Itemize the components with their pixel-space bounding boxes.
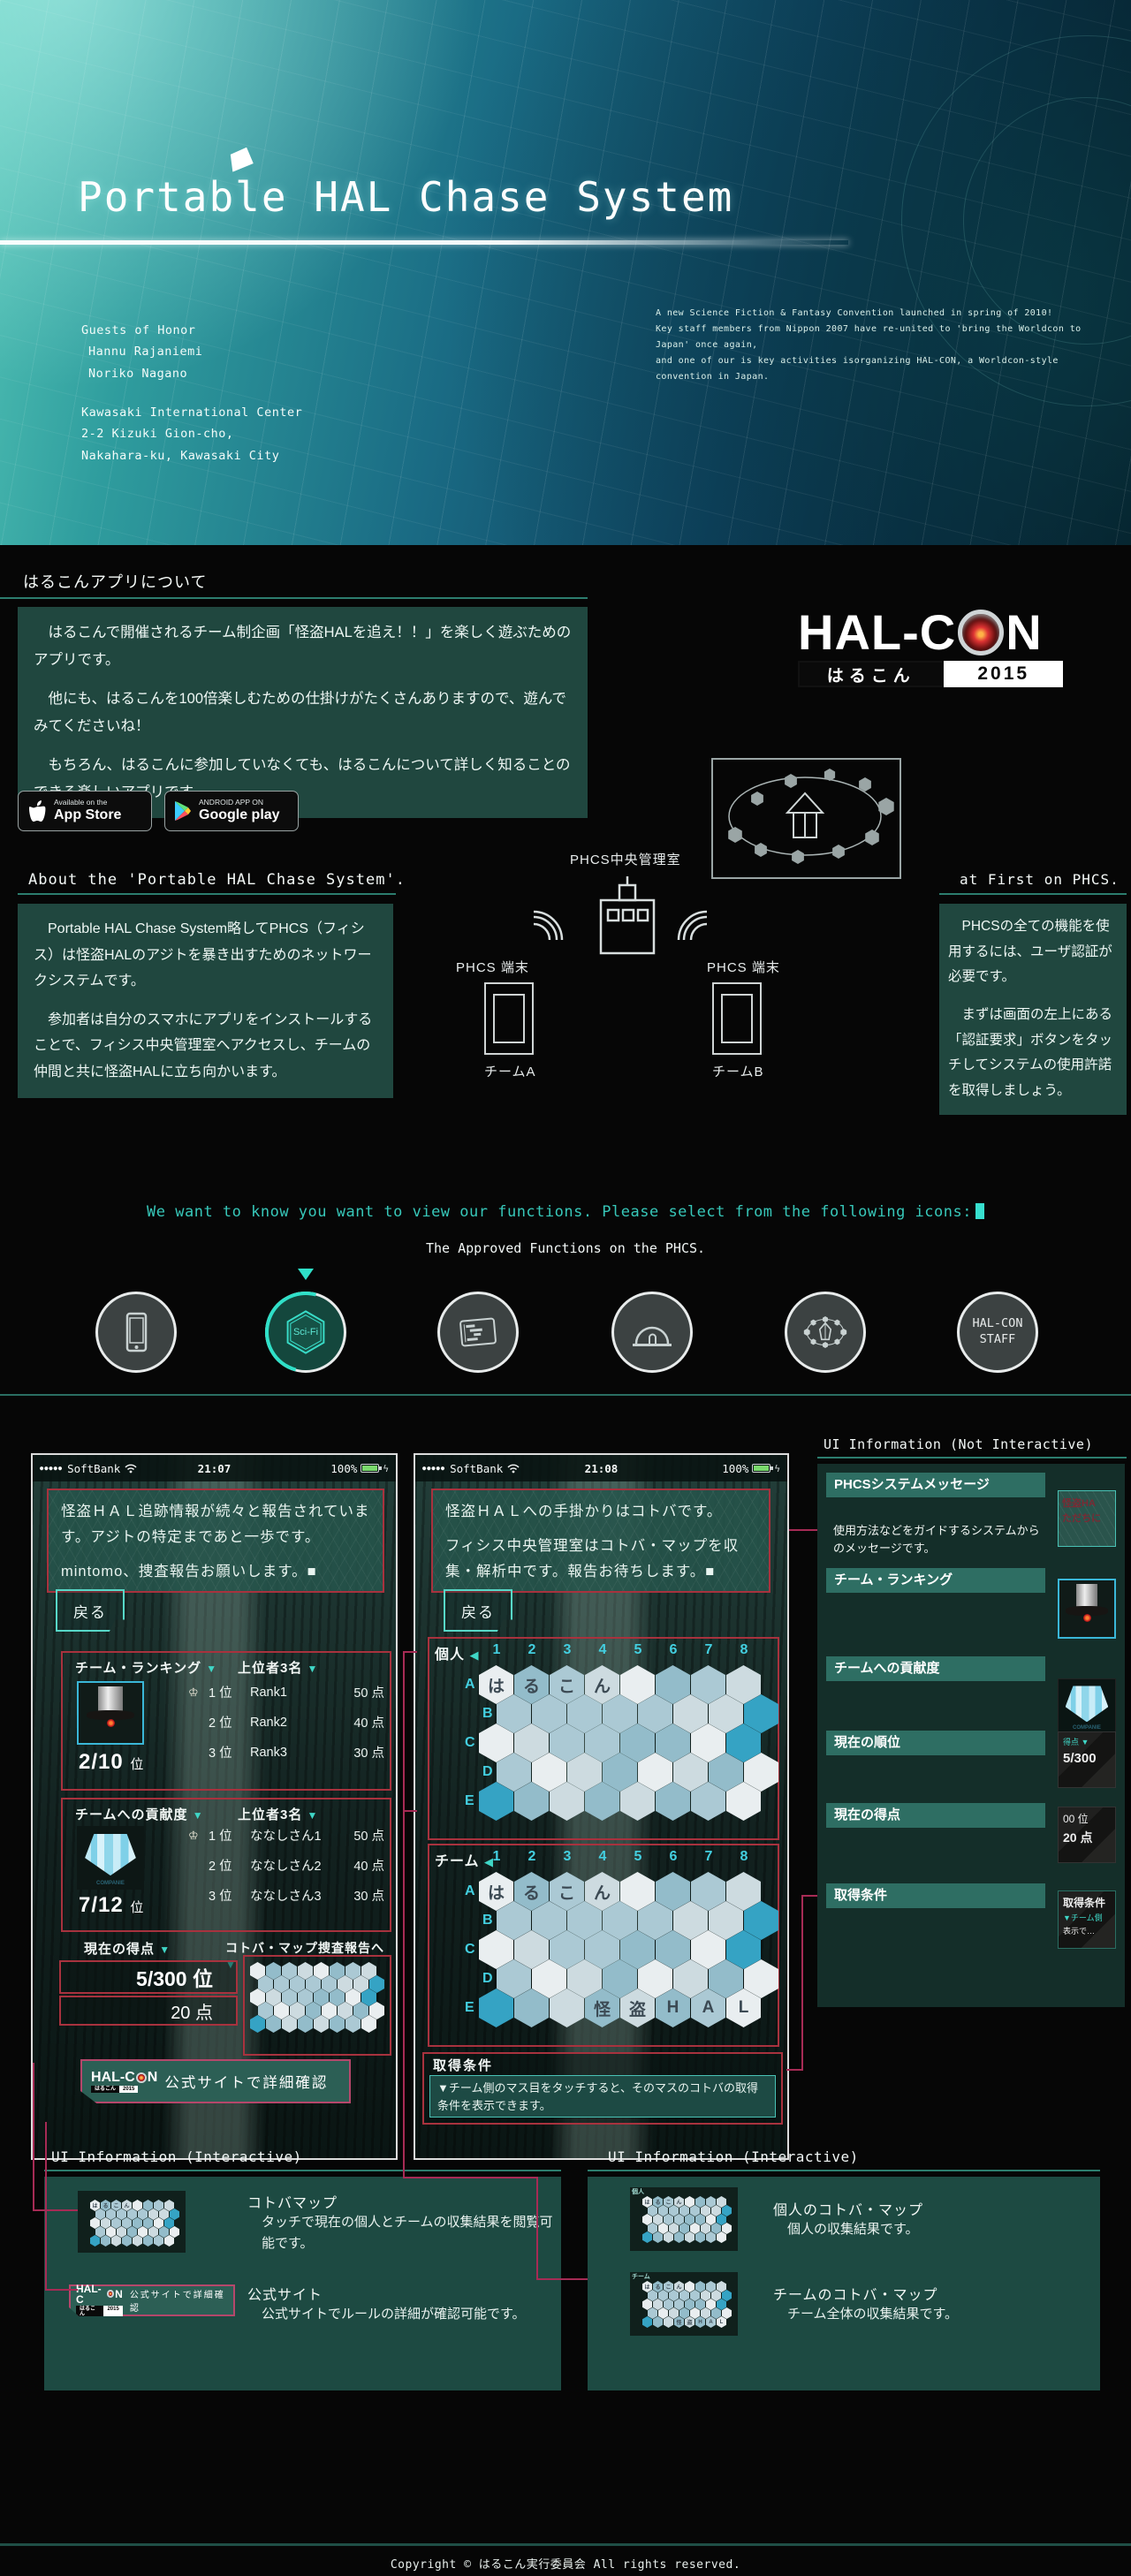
hex-cell xyxy=(170,2226,179,2238)
hex-cell xyxy=(706,2196,716,2208)
section-divider xyxy=(817,1457,1127,1458)
central-office-label: PHCS中央管理室 xyxy=(570,850,681,868)
top3-title: 上位者3名 ▼ xyxy=(238,1805,318,1823)
hex-cell xyxy=(701,2205,710,2216)
hal-eye-icon xyxy=(1083,1614,1091,1622)
grid-column-number: 2 xyxy=(528,1849,536,1865)
current-score-label: 現在の得点 ▼ xyxy=(84,1939,171,1958)
rank-row: ♔1 位Rank150 点 xyxy=(188,1683,384,1701)
dropdown-arrow-icon: ▼ xyxy=(193,1809,204,1822)
footer-copyright: Copyright © はるこん実行委員会 All rights reserve… xyxy=(0,2555,1131,2572)
kotoba-map-thumbnail: はるこん xyxy=(78,2191,186,2253)
team-rank-value: 2/10 位 xyxy=(79,1750,144,1775)
venue-line: Kawasaki International Center xyxy=(81,402,302,423)
grid-row-letter: D xyxy=(482,1971,493,1987)
hex-cell xyxy=(690,2223,700,2234)
hex-cell xyxy=(122,2235,132,2246)
phone-screenshot-right: ●●●●● SoftBank 21:08 100% ϟ 怪盗ＨＡＬへの手掛かりは… xyxy=(414,1453,789,2160)
team-map-title: チームのコトバ・マップ xyxy=(773,2283,938,2304)
hex-cell xyxy=(127,2209,137,2220)
hex-cell xyxy=(690,2307,700,2319)
hex-cell xyxy=(711,2223,721,2234)
hex-cell: H xyxy=(695,2316,705,2328)
hex-network-illustration xyxy=(713,760,899,877)
section-divider xyxy=(0,1394,1131,1396)
footer-divider xyxy=(0,2543,1131,2546)
hal-eye-icon xyxy=(136,2072,147,2083)
hex-cell xyxy=(669,2205,679,2216)
guests-of-honor: Guests of Honor Hannu Rajaniemi Noriko N… xyxy=(81,320,202,384)
hex-cell xyxy=(642,2299,652,2310)
message-line: mintomo、捜査報告お願いします。■ xyxy=(61,1559,370,1585)
section-divider xyxy=(0,597,588,599)
function-icon-smartphone[interactable] xyxy=(95,1292,177,1373)
venue-line: 2-2 Kizuki Gion-cho, xyxy=(81,423,302,444)
hex-cell xyxy=(701,2223,710,2234)
hex-cell xyxy=(653,2316,663,2328)
hex-cell xyxy=(154,2217,163,2229)
static-label-current-score: 現在の得点 xyxy=(826,1803,1045,1828)
section-divider xyxy=(44,2170,561,2171)
static-label-current-rank: 現在の順位 xyxy=(826,1731,1045,1755)
static-label-team-ranking: チーム・ランキング xyxy=(826,1568,1045,1593)
hex-cell xyxy=(159,2209,169,2220)
message-line: フィシス中央管理室はコトバ・マップを収集・解析中です。報告お待ちします。■ xyxy=(445,1534,756,1585)
hex-cell xyxy=(154,2200,163,2211)
dropdown-arrow-icon: ▼ xyxy=(206,1663,217,1675)
hex-cell xyxy=(122,2217,132,2229)
rank-score-box: 5/300 位 xyxy=(59,1960,238,1994)
function-icon-staff[interactable]: HAL-CON STAFF xyxy=(957,1292,1038,1373)
selected-pointer-icon xyxy=(298,1269,314,1280)
rank-row: 3 位Rank330 点 xyxy=(188,1743,384,1762)
about-phcs-text: Portable HAL Chase System略してPHCS（フィシス）は怪… xyxy=(18,904,393,1098)
hex-cell xyxy=(674,2299,684,2310)
interactive-right-panel: 個人 はるこん 個人のコトバ・マップ 個人の収集結果です。 チーム はるこん怪盗… xyxy=(588,2177,1100,2390)
hex-cell xyxy=(653,2231,663,2243)
function-icon-scifi[interactable]: Sci-Fi xyxy=(265,1292,346,1373)
score-box: 20 点 xyxy=(59,1996,238,2026)
intro-line: and one of our is key activities isorgan… xyxy=(656,353,1115,385)
hex-cell xyxy=(138,2209,148,2220)
grid-column-number: 3 xyxy=(564,1642,572,1658)
contribution-rows: ♔1 位ななしさん150 点2 位ななしさん240 点3 位ななしさん330 点 xyxy=(188,1826,384,1905)
hex-cell xyxy=(685,2231,695,2243)
personal-map-title: 個人のコトバ・マップ xyxy=(773,2198,923,2219)
section-divider xyxy=(18,893,396,895)
ui-static-panel: PHCSシステムメッセージ 使用方法などをガイドするシステムからのメッセージです… xyxy=(817,1464,1125,2007)
hex-cell xyxy=(674,2214,684,2225)
contribution-box: チームへの貢献度 ▼ 上位者3名 ▼ COMPANIE 7/12 位 ♔1 位な… xyxy=(61,1798,391,1932)
team-map-desc: チーム全体の収集結果です。 xyxy=(787,2304,1070,2325)
hex-cell: る xyxy=(653,2281,663,2292)
hex-cell: ん xyxy=(674,2281,684,2292)
hex-cell xyxy=(717,2196,726,2208)
grid-column-number: 5 xyxy=(634,1642,642,1658)
static-label-system-message: PHCSシステムメッセージ xyxy=(826,1473,1045,1497)
personal-hex-grid: はるこん12345678ABCDE xyxy=(429,1639,781,1842)
hex-cell xyxy=(679,2290,689,2301)
banner-text: 公式サイトで詳細確認 xyxy=(130,2287,228,2314)
hex-cell xyxy=(658,2223,668,2234)
hero-banner: Portable HAL Chase System Guests of Hono… xyxy=(0,0,1131,545)
personal-map-desc: 個人の収集結果です。 xyxy=(787,2219,1070,2240)
team-ranking-thumbnail xyxy=(1058,1579,1116,1639)
first-phcs-heading: at First on PHCS. xyxy=(960,871,1120,888)
top3-title: 上位者3名 ▼ xyxy=(238,1658,318,1677)
venue-address: Kawasaki International Center 2-2 Kizuki… xyxy=(81,402,302,466)
hex-cell xyxy=(138,2226,148,2238)
smartphone-icon xyxy=(112,1308,160,1356)
dome-icon xyxy=(628,1308,676,1356)
hex-cell xyxy=(685,2196,695,2208)
intro-line: A new Science Fiction & Fantasy Conventi… xyxy=(656,306,1115,322)
interactive-left-panel: はるこん コトバマップ タッチで現在の個人とチームの収集結果を閲覧可能です。 H… xyxy=(44,2177,561,2390)
hex-cell xyxy=(148,2226,158,2238)
logo-sub-year: 2015 xyxy=(944,661,1063,687)
thumb-text: 得点 ▼ xyxy=(1063,1736,1111,1748)
terminal-a-label: PHCS 端末 xyxy=(456,958,529,976)
text-cursor-icon xyxy=(975,1203,984,1219)
official-site-thumbnail: HAL-CN はるこん2015 公式サイトで詳細確認 xyxy=(69,2284,235,2316)
hex-cell xyxy=(695,2281,705,2292)
hex-cell xyxy=(154,2235,163,2246)
badge-bottom-text: Google play xyxy=(199,807,280,823)
intro-line: Key staff members from Nippon 2007 have … xyxy=(656,322,1115,353)
grid-column-number: 6 xyxy=(670,1849,678,1865)
contribution-title: チームへの貢献度 ▼ xyxy=(75,1805,204,1823)
hex-cell xyxy=(706,2299,716,2310)
hex-cell xyxy=(685,2281,695,2292)
scifi-label: Sci-Fi xyxy=(293,1327,318,1337)
system-message-box: 怪盗ＨＡＬへの手掛かりはコトバです。 フィシス中央管理室はコトバ・マップを収集・… xyxy=(431,1489,770,1593)
team-b-label: チームB xyxy=(712,1062,764,1080)
hex-cell xyxy=(685,2214,695,2225)
back-button: 戻る xyxy=(444,1589,512,1632)
hex-cell: L xyxy=(717,2316,726,2328)
hex-cell xyxy=(695,2214,705,2225)
hex-cell xyxy=(679,2223,689,2234)
function-icon-schedule[interactable] xyxy=(437,1292,519,1373)
conditions-thumbnail: 取得条件 ▼チーム側 表示で… xyxy=(1058,1890,1116,1949)
contribution-thumbnail: COMPANIE xyxy=(77,1826,144,1890)
kotoba-map-title: コトバマップ xyxy=(247,2191,338,2212)
grid-row-letter: C xyxy=(465,1942,475,1958)
about-app-heading: はるこんアプリについて xyxy=(23,570,207,593)
grid-column-number: 8 xyxy=(740,1642,748,1658)
grid-column-number: 8 xyxy=(740,1849,748,1865)
staff-label-line1: HAL-CON xyxy=(973,1316,1023,1332)
hex-cell xyxy=(101,2217,110,2229)
team-a-label: チームA xyxy=(484,1062,536,1080)
hex-cell xyxy=(642,2214,652,2225)
terminal-b-phone-icon xyxy=(712,982,762,1055)
grid-row-letter: B xyxy=(482,1706,493,1722)
hal-eye-icon xyxy=(107,1719,115,1727)
hex-cell: こ xyxy=(664,2281,673,2292)
charging-bolt-icon: ϟ xyxy=(383,1463,389,1474)
thumb-grid-label: チーム xyxy=(632,2272,650,2281)
hex-cell xyxy=(711,2205,721,2216)
personal-kotoba-map: 個人 ◀ はるこん12345678ABCDE xyxy=(428,1637,779,1840)
hex-cell xyxy=(159,2226,169,2238)
thumb-grid-label: 個人 xyxy=(632,2187,644,2196)
hex-cell xyxy=(106,2226,116,2238)
grid-column-number: 4 xyxy=(599,1849,607,1865)
hex-cell xyxy=(133,2235,142,2246)
hex-cell xyxy=(648,2223,657,2234)
message-line: 怪盗ＨＡＬへの手掛かりはコトバです。 xyxy=(445,1499,756,1525)
about-app-paragraph: 他にも、はるこんを100倍楽しむための仕掛けがたくさんありますので、遊んでみてく… xyxy=(34,686,572,739)
charging-bolt-icon: ϟ xyxy=(774,1463,780,1474)
thumb-text: 20 点 xyxy=(1063,1828,1111,1847)
hex-cell xyxy=(717,2214,726,2225)
grid-column-number: 7 xyxy=(705,1849,713,1865)
status-bar: ●●●●● SoftBank 21:08 100% ϟ xyxy=(415,1455,787,1481)
official-site-title: 公式サイト xyxy=(247,2283,323,2304)
hex-cell xyxy=(658,2307,668,2319)
hex-cell: 怪 xyxy=(674,2316,684,2328)
play-triangle-icon xyxy=(174,801,192,821)
grid-row-letter: E xyxy=(465,1793,474,1809)
hex-cell xyxy=(674,2231,684,2243)
official-site-desc: 公式サイトでルールの詳細が確認可能です。 xyxy=(262,2304,553,2325)
ranking-rows: ♔1 位Rank150 点2 位Rank240 点3 位Rank330 点 xyxy=(188,1683,384,1762)
hex-cell xyxy=(164,2200,174,2211)
hex-cell xyxy=(117,2209,126,2220)
hex-cell xyxy=(669,2307,679,2319)
central-office-icon xyxy=(590,876,659,958)
conditions-body: ▼チーム側のマス目をタッチすると、そのマスのコトバの取得条件を表示できます。 xyxy=(429,2075,776,2118)
hex-cell xyxy=(90,2235,100,2246)
hex-cell xyxy=(711,2307,721,2319)
hex-cell xyxy=(664,2231,673,2243)
dropdown-arrow-icon: ▼ xyxy=(307,1809,319,1822)
function-icon-dome[interactable] xyxy=(611,1292,693,1373)
about-app-paragraph: はるこんで開催されるチーム制企画「怪盗HALを追え！！」を楽しく遊ぶためのアプリ… xyxy=(34,619,572,673)
grid-column-number: 2 xyxy=(528,1642,536,1658)
first-phcs-paragraph: まずは画面の左上にある「認証要求」ボタンをタッチしてシステムの使用許諾を取得しま… xyxy=(948,1003,1118,1104)
hex-cell: は xyxy=(90,2200,100,2211)
logo-text-left: HAL-C xyxy=(798,608,956,657)
google-play-badge[interactable]: ANDROID APP ON Google play xyxy=(164,791,299,831)
dropdown-arrow-icon: ▼ xyxy=(307,1663,319,1675)
conditions-title: 取得条件 xyxy=(433,2056,493,2074)
hex-cell xyxy=(95,2226,105,2238)
function-prompt: We want to know you want to view our fun… xyxy=(0,1203,1131,1221)
hex-cell xyxy=(143,2200,153,2211)
hex-cell xyxy=(117,2226,126,2238)
current-rank-thumbnail: 得点 ▼ 5/300 xyxy=(1058,1731,1116,1788)
hex-cell: こ xyxy=(111,2200,121,2211)
static-label-contribution: チームへの貢献度 xyxy=(826,1656,1045,1681)
hex-cell xyxy=(95,2209,105,2220)
phone-screenshot-left: ●●●●● SoftBank 21:07 100% ϟ 怪盗ＨＡＬ追跡情報が続々… xyxy=(31,1453,398,2160)
badge-top-text: Available on the xyxy=(54,799,121,807)
status-bar: ●●●●● SoftBank 21:07 100% ϟ xyxy=(33,1455,396,1481)
hex-cell xyxy=(658,2205,668,2216)
hex-cell xyxy=(648,2290,657,2301)
hal-eye-icon xyxy=(958,610,1004,655)
hex-cell xyxy=(722,2290,732,2301)
grid-row-letter: B xyxy=(482,1913,493,1928)
hex-cell xyxy=(685,2299,695,2310)
guest-name: Hannu Rajaniemi xyxy=(81,341,202,362)
title-underline xyxy=(0,240,848,245)
interactive-left-heading: UI Information (Interactive) xyxy=(51,2148,302,2165)
terminal-a-phone-icon xyxy=(484,982,534,1055)
hex-cell xyxy=(658,2290,668,2301)
team-kotoba-map: チーム ◀ はるこん怪盗HAL12345678ABCDE xyxy=(428,1844,779,2047)
apple-icon xyxy=(27,799,47,822)
current-score-thumbnail: 00 位 20 点 xyxy=(1058,1807,1116,1863)
contribution-thumbnail: COMPANIE xyxy=(1058,1678,1116,1735)
hex-cell xyxy=(106,2209,116,2220)
message-line: 怪盗ＨＡＬ追跡情報が続々と報告されています。アジトの特定まであと一歩です。 xyxy=(61,1499,370,1550)
hal-eye-icon xyxy=(107,2290,115,2298)
grid-column-number: 5 xyxy=(634,1849,642,1865)
hex-cell xyxy=(648,2205,657,2216)
badge-top-text: ANDROID APP ON xyxy=(199,799,280,807)
hex-cell xyxy=(90,2217,100,2229)
team-map-thumbnail: チーム はるこん怪盗HAL xyxy=(630,2272,738,2336)
first-phcs-paragraph: PHCSの全ての機能を使用するには、ユーザ認証が必要です。 xyxy=(948,914,1118,990)
hex-cell xyxy=(648,2307,657,2319)
grid-column-number: 4 xyxy=(599,1642,607,1658)
grid-row-letter: D xyxy=(482,1764,493,1780)
hex-cell: こ xyxy=(664,2196,673,2208)
rank-row: ♔1 位ななしさん150 点 xyxy=(188,1826,384,1845)
hex-network-diagram xyxy=(711,758,901,879)
grid-column-number: 7 xyxy=(705,1642,713,1658)
wifi-waves-icon xyxy=(525,903,571,949)
hex-cell xyxy=(679,2307,689,2319)
rank-row: 2 位ななしさん240 点 xyxy=(188,1856,384,1875)
acquisition-conditions-box: 取得条件 ▼チーム側のマス目をタッチすると、そのマスのコトバの取得条件を表示でき… xyxy=(422,2052,783,2125)
grid-column-number: 6 xyxy=(670,1642,678,1658)
ranking-thumbnail xyxy=(77,1681,144,1745)
hex-cell xyxy=(722,2307,732,2319)
hex-cell xyxy=(701,2290,710,2301)
hex-cell xyxy=(706,2214,716,2225)
hex-cell xyxy=(642,2316,652,2328)
about-app-text: はるこんで開催されるチーム制企画「怪盗HALを追え！！」を楽しく遊ぶためのアプリ… xyxy=(18,607,588,818)
hex-cell xyxy=(653,2214,663,2225)
app-store-badge[interactable]: Available on the App Store xyxy=(18,791,152,831)
hex-cell: る xyxy=(653,2196,663,2208)
static-desc-system-message: 使用方法などをガイドするシステムからのメッセージです。 xyxy=(833,1522,1045,1557)
ui-static-heading: UI Information (Not Interactive) xyxy=(824,1436,1093,1452)
section-divider xyxy=(588,2170,1100,2171)
interactive-right-heading: UI Information (Interactive) xyxy=(608,2148,859,2165)
battery-percent: 100% xyxy=(330,1462,357,1475)
hex-cell xyxy=(690,2205,700,2216)
system-message-box: 怪盗ＨＡＬ追跡情報が続々と報告されています。アジトの特定まであと一歩です。 mi… xyxy=(47,1489,384,1593)
hex-cell xyxy=(133,2200,142,2211)
dropdown-arrow-icon: ▼ xyxy=(159,1943,171,1956)
hex-cell xyxy=(143,2217,153,2229)
grid-column-number: 3 xyxy=(564,1849,572,1865)
about-phcs-paragraph: Portable HAL Chase System略してPHCS（フィシス）は怪… xyxy=(34,916,377,995)
logo-sub-japanese: はるこん xyxy=(798,661,944,687)
schedule-card-icon xyxy=(454,1308,502,1356)
guests-heading: Guests of Honor xyxy=(81,320,202,341)
contribution-rank-value: 7/12 位 xyxy=(79,1893,144,1918)
hex-cell xyxy=(679,2205,689,2216)
hex-cell xyxy=(164,2217,174,2229)
battery-icon xyxy=(752,1464,770,1473)
hex-cell xyxy=(653,2299,663,2310)
battery-percent: 100% xyxy=(722,1462,748,1475)
hex-cell xyxy=(669,2290,679,2301)
rank-row: 3 位ななしさん330 点 xyxy=(188,1886,384,1905)
terminal-b-label: PHCS 端末 xyxy=(707,958,780,976)
thumb-text: 表示で… xyxy=(1063,1925,1111,1937)
hex-cell: は xyxy=(642,2281,652,2292)
back-button: 戻る xyxy=(56,1589,125,1632)
hex-cell xyxy=(717,2231,726,2243)
hex-cell xyxy=(690,2290,700,2301)
grid-row-letter: A xyxy=(465,1677,475,1693)
halcon-page: Portable HAL Chase System Guests of Hono… xyxy=(0,0,1131,2576)
prompt-text: We want to know you want to view our fun… xyxy=(147,1203,972,1221)
hex-cell: ん xyxy=(674,2196,684,2208)
logo-text-right: N xyxy=(1006,608,1042,657)
thumb-text: 5/300 xyxy=(1063,1748,1111,1769)
hex-cell xyxy=(711,2290,721,2301)
personal-map-thumbnail: 個人 はるこん xyxy=(630,2187,738,2251)
halcon-mini-logo: HAL-CN はるこん2015 xyxy=(91,2071,157,2093)
thumb-text: ただちに xyxy=(1062,1512,1112,1527)
banner-text: 公式サイトで詳細確認 xyxy=(164,2071,328,2092)
thumb-text: 00 位 xyxy=(1063,1811,1111,1828)
hex-cell xyxy=(111,2235,121,2246)
static-label-conditions: 取得条件 xyxy=(826,1883,1045,1908)
grid-row-letter: E xyxy=(465,2000,474,2016)
hex-cell xyxy=(642,2231,652,2243)
hex-cell: ん xyxy=(122,2200,132,2211)
team-hex-grid: はるこん怪盗HAL12345678ABCDE xyxy=(429,1845,781,2049)
hex-cell xyxy=(695,2299,705,2310)
about-phcs-paragraph: 参加者は自分のスマホにアプリをインストールすることで、フィシス中央管理室へアクセ… xyxy=(34,1007,377,1086)
hex-cell xyxy=(148,2209,158,2220)
hex-cell xyxy=(664,2316,673,2328)
section-divider xyxy=(939,893,1127,895)
guest-name: Noriko Nagano xyxy=(81,363,202,384)
thumb-text: 取得条件 xyxy=(1063,1895,1111,1912)
page-title: Portable HAL Chase System xyxy=(78,173,733,221)
hex-cell xyxy=(701,2307,710,2319)
hex-cell xyxy=(706,2231,716,2243)
convention-intro: A new Science Fiction & Fantasy Conventi… xyxy=(656,306,1115,385)
kotoba-map-desc: タッチで現在の個人とチームの収集結果を閲覧可能です。 xyxy=(262,2212,553,2254)
about-phcs-heading: About the 'Portable HAL Chase System'. xyxy=(28,871,406,889)
function-icon-hexnetwork[interactable] xyxy=(785,1292,866,1373)
battery-icon xyxy=(361,1464,379,1473)
hex-cell xyxy=(101,2235,110,2246)
mini-kotoba-map xyxy=(243,1955,391,2056)
hex-cell xyxy=(717,2299,726,2310)
hex-cell xyxy=(722,2205,732,2216)
hex-network-icon xyxy=(801,1307,850,1357)
staff-label-line2: STAFF xyxy=(973,1332,1023,1348)
wifi-waves-icon xyxy=(670,903,716,949)
hex-cell xyxy=(143,2235,153,2246)
hex-cell xyxy=(127,2226,137,2238)
hex-cell xyxy=(111,2217,121,2229)
grid-column-number: 1 xyxy=(493,1642,501,1658)
hex-cell xyxy=(664,2299,673,2310)
